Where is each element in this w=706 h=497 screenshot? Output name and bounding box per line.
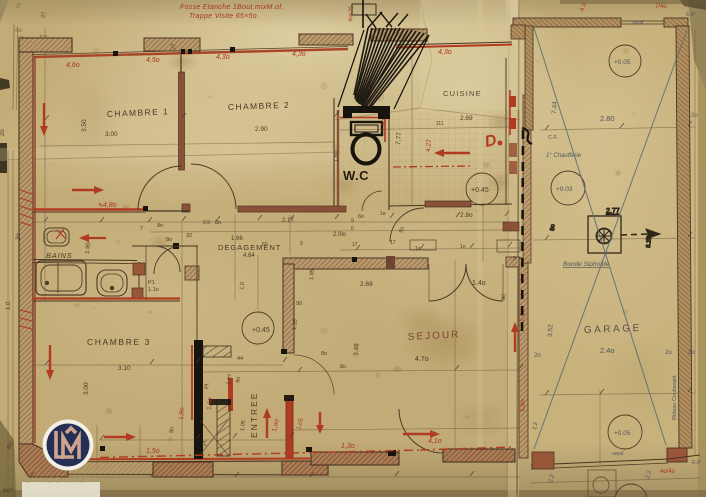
svg-text:Trappe Visite 65×5o: Trappe Visite 65×5o [189,13,257,20]
svg-text:∿4,8o: ∿4,8o [97,202,117,209]
svg-text:27: 27 [171,44,178,51]
svg-text:8o: 8o [550,223,557,231]
svg-text:17: 17 [352,242,358,248]
svg-text:+0.03: +0.03 [556,186,573,193]
svg-text:2.69: 2.69 [460,115,473,122]
svg-text:27: 27 [41,12,48,19]
svg-text:32: 32 [186,233,192,239]
svg-text:LYMOBILIER: LYMOBILIER [26,476,92,485]
svg-text:8o: 8o [169,427,176,434]
svg-text:60: 60 [262,242,268,248]
svg-text:2o: 2o [0,129,6,136]
svg-text:2.0lo: 2.0lo [333,232,347,238]
svg-text:7.44: 7.44 [551,101,559,114]
svg-text:2o: 2o [534,353,541,359]
svg-text:111: 111 [436,121,444,127]
svg-text:6o: 6o [358,214,364,220]
svg-text:8o: 8o [157,223,163,229]
svg-text:1.90: 1.90 [85,241,92,254]
svg-text:3.10: 3.10 [118,365,131,372]
svg-text:9,9: 9,9 [203,220,210,226]
svg-text:Rideau Coulissant: Rideau Coulissant [672,375,678,420]
svg-text:4,5o: 4,5o [146,57,160,64]
svg-text:3.00: 3.00 [83,382,90,395]
svg-text:0: 0 [351,226,354,232]
svg-text:2.17: 2.17 [282,218,294,224]
svg-text:Pl.: Pl. [202,439,209,446]
svg-text:17: 17 [390,240,396,246]
svg-text:1,9o: 1,9o [178,407,186,420]
svg-text:1.1o: 1.1o [148,287,159,293]
svg-text:1.60: 1.60 [334,150,340,162]
svg-text:4o/4o: 4o/4o [660,469,676,475]
svg-text:ENTREE: ENTREE [249,392,259,438]
svg-text:9: 9 [513,256,516,262]
svg-text:44: 44 [237,356,243,362]
svg-text:75: 75 [16,2,23,9]
svg-text:E.P.: E.P. [686,12,696,18]
svg-text:1,4o: 1,4o [206,397,214,410]
svg-text:1.05: 1.05 [240,420,247,431]
svg-text:P1: P1 [148,280,155,286]
svg-text:7: 7 [140,226,143,232]
svg-text:1.85: 1.85 [309,269,316,280]
svg-text:1.0: 1.0 [6,301,12,310]
svg-text:2.8o: 2.8o [460,212,473,219]
svg-text:3.48: 3.48 [353,343,360,356]
svg-text:2o: 2o [665,350,672,356]
svg-text:C.F.: C.F. [548,135,558,141]
svg-text:9: 9 [300,241,303,247]
svg-text:2.80: 2.80 [600,114,615,123]
svg-text:9: 9 [351,218,354,224]
svg-text:1.35: 1.35 [292,319,299,330]
svg-text:Bonde Siphoïde: Bonde Siphoïde [563,261,610,268]
svg-text:2.4o: 2.4o [600,346,615,355]
svg-text:4.27: 4.27 [425,139,433,153]
svg-text:90: 90 [296,301,302,307]
svg-text:2.90: 2.90 [255,126,268,133]
svg-text:W.C: W.C [343,168,369,183]
svg-text:GARAGE: GARAGE [584,323,642,336]
svg-text:8.25: 8.25 [646,235,653,248]
svg-text:E.P: E.P [40,34,47,39]
svg-text:4ox25: 4ox25 [348,5,355,22]
svg-text:1.60: 1.60 [380,119,388,133]
svg-text:1° Chaufferie: 1° Chaufferie [546,153,582,159]
svg-text:4,6o: 4,6o [66,62,80,69]
svg-text:1o: 1o [460,244,466,250]
svg-text:8o: 8o [321,351,327,357]
svg-text:seuil: seuil [612,451,624,457]
svg-text:1o: 1o [380,211,386,217]
svg-text:E.P: E.P [692,460,701,466]
svg-text:+0.05: +0.05 [614,59,631,66]
svg-text:2.69: 2.69 [360,281,373,288]
svg-text:1o: 1o [415,246,421,252]
svg-text:+0.05: +0.05 [614,430,631,437]
svg-text:4,3o: 4,3o [216,54,230,61]
svg-text:4.7o: 4.7o [415,356,429,363]
svg-text:Pl.: Pl. [204,382,211,389]
svg-text:3.00: 3.00 [105,131,118,138]
svg-text:4o: 4o [15,28,22,34]
svg-text:2o: 2o [691,113,698,119]
svg-text:7/4o: 7/4o [655,4,667,10]
svg-text:8o: 8o [166,237,172,243]
svg-text:Fosse Etanche 1Bout.mixM.of.: Fosse Etanche 1Bout.mixM.of. [180,4,284,11]
svg-text:BAINS: BAINS [46,251,73,260]
svg-text:3.50: 3.50 [81,119,88,132]
svg-text:4,1o: 4,1o [428,438,442,445]
svg-text:1,5o: 1,5o [146,448,160,455]
svg-text:seuil: seuil [632,20,644,26]
svg-text:2o: 2o [16,233,22,240]
svg-text:2o: 2o [688,350,695,356]
svg-text:1.66: 1.66 [231,236,243,242]
svg-text:90: 90 [501,294,508,301]
svg-text:8o: 8o [235,376,242,383]
svg-text:CHAMBRE 3: CHAMBRE 3 [87,337,151,347]
svg-text:3.52: 3.52 [547,324,554,337]
svg-text:1,9o: 1,9o [519,399,526,412]
svg-text:1,3o: 1,3o [341,443,355,450]
svg-text:4.84: 4.84 [243,253,255,259]
svg-text:DEGAGEMENT: DEGAGEMENT [218,243,281,252]
svg-text:7.77: 7.77 [395,132,403,146]
svg-text:/4a: /4a [17,35,24,41]
svg-text:+0.45: +0.45 [471,187,489,194]
svg-text:2.77: 2.77 [606,208,620,215]
svg-text:CUISINE: CUISINE [443,89,482,98]
svg-text:6o?: 6o? [3,488,14,494]
svg-text:4,3o: 4,3o [438,49,452,56]
svg-text:1.4o: 1.4o [472,280,486,287]
svg-text:8o: 8o [340,364,346,370]
svg-text:4,3o: 4,3o [292,51,306,58]
svg-text:+0.45: +0.45 [252,327,270,334]
